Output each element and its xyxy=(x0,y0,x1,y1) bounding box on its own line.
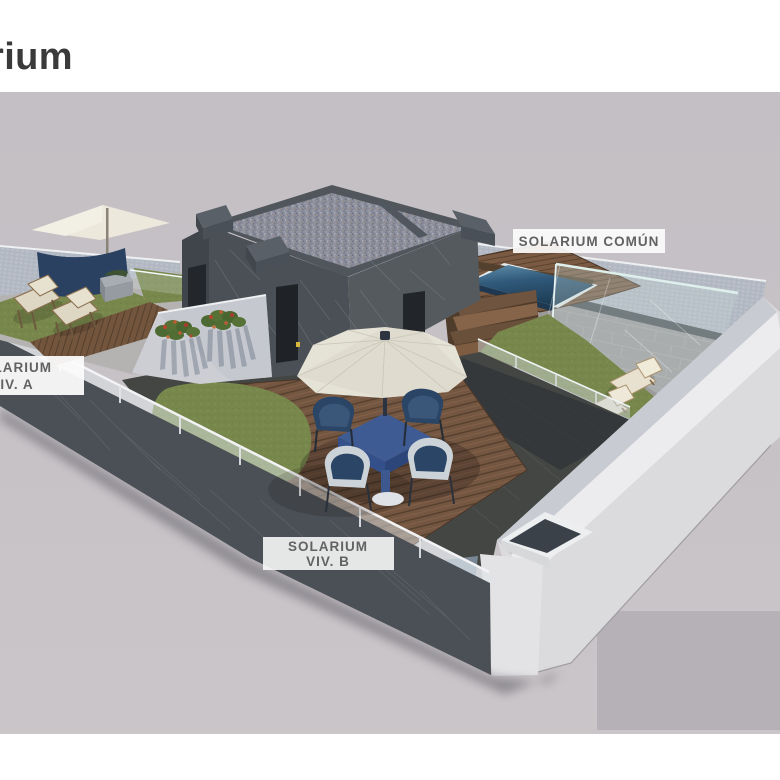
svg-text:VIV. B: VIV. B xyxy=(306,554,350,569)
svg-text:SOLARIUM: SOLARIUM xyxy=(0,360,52,375)
svg-text:VIV. A: VIV. A xyxy=(0,377,34,392)
svg-text:SOLARIUM: SOLARIUM xyxy=(288,539,368,554)
svg-text:rium: rium xyxy=(0,36,73,78)
svg-text:SOLARIUM COMÚN: SOLARIUM COMÚN xyxy=(519,234,660,249)
